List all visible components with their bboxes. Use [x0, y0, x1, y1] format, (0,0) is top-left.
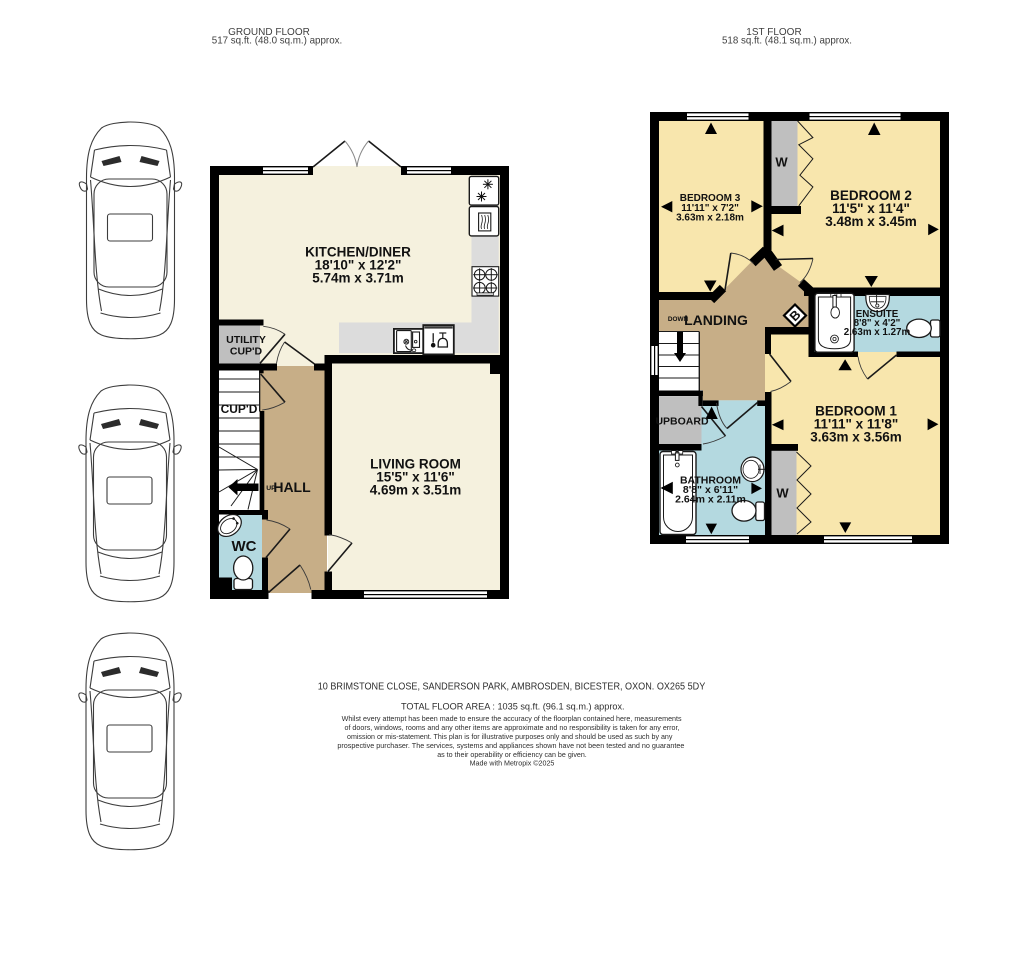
- svg-text:UP: UP: [266, 485, 276, 492]
- svg-text:2.63m x 1.27m: 2.63m x 1.27m: [844, 327, 911, 338]
- svg-text:prospective purchaser. The ser: prospective purchaser. The services, sys…: [337, 741, 684, 750]
- svg-text:CUP'D: CUP'D: [230, 346, 263, 358]
- svg-text:Made with Metropix ©2025: Made with Metropix ©2025: [470, 759, 555, 768]
- svg-text:3.63m x 3.56m: 3.63m x 3.56m: [810, 430, 902, 445]
- svg-text:10 BRIMSTONE CLOSE, SANDERSON: 10 BRIMSTONE CLOSE, SANDERSON PARK, AMBR…: [318, 681, 706, 692]
- svg-text:UPBOARD: UPBOARD: [655, 416, 709, 428]
- svg-text:3.48m x 3.45m: 3.48m x 3.45m: [825, 214, 917, 229]
- svg-text:Whilst every attempt has been: Whilst every attempt has been made to en…: [342, 714, 682, 723]
- svg-text:3.63m x 2.18m: 3.63m x 2.18m: [676, 213, 744, 224]
- svg-text:5.74m x 3.71m: 5.74m x 3.71m: [312, 271, 404, 286]
- svg-text:TOTAL FLOOR AREA : 1035 sq.ft.: TOTAL FLOOR AREA : 1035 sq.ft. (96.1 sq.…: [401, 702, 625, 713]
- svg-text:HALL: HALL: [273, 479, 311, 495]
- svg-text:W: W: [776, 486, 789, 501]
- svg-text:4.69m x 3.51m: 4.69m x 3.51m: [370, 483, 462, 498]
- svg-text:omission or mis-statement. Thi: omission or mis-statement. This plan is …: [347, 732, 673, 741]
- svg-text:LANDING: LANDING: [684, 312, 748, 328]
- svg-text:UTILITY: UTILITY: [226, 334, 266, 346]
- svg-text:517 sq.ft. (48.0 sq.m.) approx: 517 sq.ft. (48.0 sq.m.) approx.: [212, 36, 343, 47]
- svg-text:CUP'D: CUP'D: [221, 402, 258, 416]
- svg-text:W: W: [775, 155, 788, 170]
- svg-text:of doors, windows, rooms and a: of doors, windows, rooms and any other i…: [345, 723, 680, 732]
- svg-text:2.64m x 2.11m: 2.64m x 2.11m: [675, 494, 746, 506]
- svg-text:WC: WC: [232, 538, 257, 555]
- svg-text:DOWN: DOWN: [668, 316, 689, 323]
- svg-text:518 sq.ft. (48.1 sq.m.) approx: 518 sq.ft. (48.1 sq.m.) approx.: [722, 36, 852, 47]
